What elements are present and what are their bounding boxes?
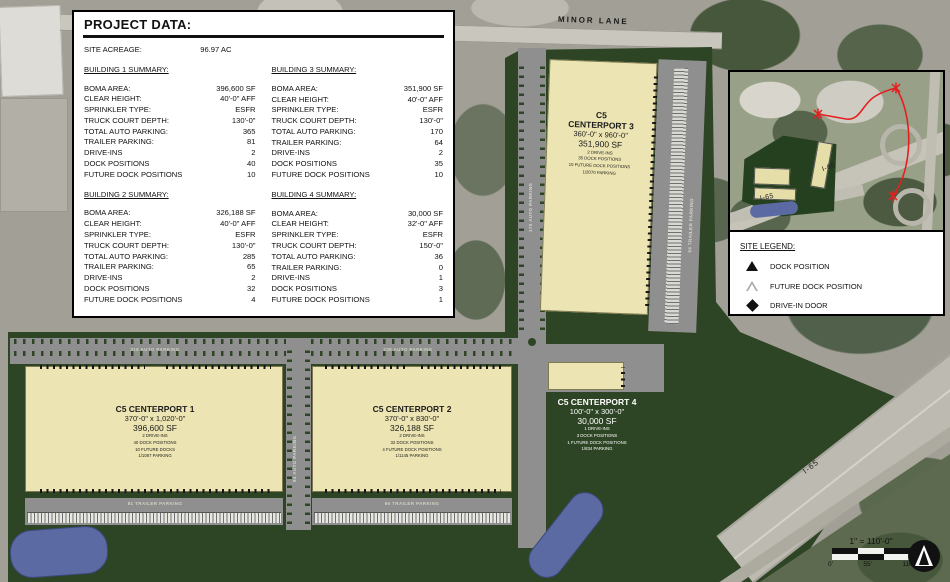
- building-4: [548, 362, 624, 390]
- scale-bar: 1" = 110'-0" 0' 55' 110': [832, 536, 916, 568]
- summary-row: CLEAR HEIGHT:40'-0" AFF: [84, 219, 256, 230]
- summary-row: BOMA AREA:326,188 SF: [84, 208, 256, 219]
- auto-parking-238-label: 238 AUTO PARKING: [348, 347, 468, 352]
- site-plan-canvas: MINOR LANE 64 TRAILER PARKI: [0, 0, 950, 582]
- building3-label: C5 CENTERPORT 3 360'-0" x 960'-0" 351,90…: [546, 108, 654, 178]
- legend-item: DRIVE-IN DOOR: [744, 301, 943, 310]
- summary-row: DRIVE-INS1: [272, 273, 444, 284]
- summary-row: DOCK POSITIONS32: [84, 284, 256, 295]
- trailer-stall-lines: [314, 512, 510, 523]
- project-data-title: PROJECT DATA:: [83, 16, 444, 38]
- summary-row: CLEAR HEIGHT:32'-0" AFF: [272, 219, 444, 230]
- dock-position-icon: [746, 261, 758, 271]
- summary-row: FUTURE DOCK POSITIONS10: [84, 170, 256, 181]
- summary-row: TOTAL AUTO PARKING:36: [272, 252, 444, 263]
- parking-stalls: [287, 344, 292, 524]
- summary-row: TRAILER PARKING:64: [272, 138, 444, 149]
- dock-positions: [325, 365, 405, 369]
- summary-row: FUTURE DOCK POSITIONS10: [272, 170, 444, 181]
- summary-row: TRUCK COURT DEPTH:130'-0": [272, 116, 444, 127]
- summary-row: DRIVE-INS2: [272, 148, 444, 159]
- summary-row: SPRINKLER TYPE:ESFR: [272, 230, 444, 241]
- summary-row: DOCK POSITIONS40: [84, 159, 256, 170]
- summary-row: SPRINKLER TYPE:ESFR: [84, 105, 256, 116]
- aerial-warehouse-roof-2: [0, 98, 68, 212]
- legend-item: FUTURE DOCK POSITION: [744, 281, 943, 291]
- building4-label: C5 CENTERPORT 4 100'-0" x 300'-0" 30,000…: [533, 397, 661, 453]
- dock-positions: [621, 367, 625, 387]
- auto-parking-94-label: 94 AUTO PARKING: [292, 436, 297, 482]
- dock-positions: [325, 489, 501, 493]
- future-dock-position-icon: [746, 281, 758, 291]
- trailer-stall-lines: [664, 68, 688, 324]
- summary-row: TRAILER PARKING:0: [272, 263, 444, 274]
- auto-parking-170-label: 170 AUTO PARKING: [528, 183, 533, 232]
- project-data-table: SITE ACREAGE: 96.97 AC BUILDING 1 SUMMAR…: [83, 42, 444, 306]
- summary-row: FUTURE DOCK POSITIONS4: [84, 295, 256, 306]
- summary-row: TOTAL AUTO PARKING:170: [272, 127, 444, 138]
- trailer-parking-64-label: 64 TRAILER PARKING: [687, 198, 694, 253]
- building-3: C5 CENTERPORT 3 360'-0" x 960'-0" 351,90…: [540, 59, 658, 315]
- building2-label: C5 CENTERPORT 2 370'-0" x 830'-0" 326,18…: [327, 404, 497, 460]
- auto-parking-318-label: 318 AUTO PARKING: [95, 347, 215, 352]
- table-column-left: SITE ACREAGE: 96.97 AC BUILDING 1 SUMMAR…: [84, 42, 256, 306]
- summary-row: TRAILER PARKING:65: [84, 262, 256, 273]
- dock-positions: [166, 365, 271, 369]
- parking-stalls: [305, 344, 310, 524]
- legend-item: DOCK POSITION: [744, 261, 943, 271]
- summary-row: BOMA AREA:30,000 SF: [272, 209, 444, 220]
- scale-bar-graphic: [832, 548, 910, 560]
- table-column-right: BUILDING 3 SUMMARY: BOMA AREA:351,900 SF…: [272, 42, 444, 306]
- site-legend: SITE LEGEND: DOCK POSITION FUTURE DOCK P…: [730, 232, 943, 310]
- summary-row: FUTURE DOCK POSITIONS1: [272, 295, 444, 306]
- site-acreage-row: SITE ACREAGE: 96.97 AC: [84, 45, 231, 56]
- dock-positions: [40, 489, 270, 493]
- summary-row: DRIVE-INS2: [84, 148, 256, 159]
- column-spacer: [272, 42, 444, 56]
- trailer-parking-81-label: 81 TRAILER PARKING: [100, 501, 210, 506]
- summary-row: TOTAL AUTO PARKING:365: [84, 127, 256, 138]
- detention-pond-west: [8, 525, 109, 580]
- route-line: [818, 88, 896, 119]
- location-inset-map: I-65 I-65: [730, 72, 943, 232]
- summary-row: DOCK POSITIONS3: [272, 284, 444, 295]
- inset-panel: I-65 I-65 SITE LEGEND: DOCK POSITION FUT…: [728, 70, 945, 316]
- trailer-parking-65-label: 65 TRAILER PARKING: [357, 501, 467, 506]
- site-legend-title: SITE LEGEND:: [740, 242, 943, 251]
- scale-bar-ticks: 0' 55' 110': [828, 561, 914, 568]
- legend-item-label: FUTURE DOCK POSITION: [770, 282, 862, 291]
- route-line: [893, 88, 909, 196]
- building3-heading: BUILDING 3 SUMMARY:: [272, 65, 444, 76]
- north-arrow-icon: [908, 540, 940, 572]
- summary-row: TRAILER PARKING:81: [84, 137, 256, 148]
- summary-row: DOCK POSITIONS35: [272, 159, 444, 170]
- summary-row: BOMA AREA:351,900 SF: [272, 84, 444, 95]
- parking-stalls: [14, 339, 516, 344]
- summary-row: TOTAL AUTO PARKING:285: [84, 252, 256, 263]
- trailer-stall-lines: [27, 512, 281, 523]
- scale-bar-title: 1" = 110'-0": [832, 536, 910, 546]
- route-marker-icon: [889, 191, 897, 202]
- route-overlay: [730, 72, 943, 230]
- center-drive: [286, 338, 311, 530]
- summary-row: TRUCK COURT DEPTH:130'-0": [84, 116, 256, 127]
- project-data-panel: PROJECT DATA: SITE ACREAGE: 96.97 AC BUI…: [72, 10, 455, 318]
- summary-row: CLEAR HEIGHT:40'-0" AFF: [84, 94, 256, 105]
- drive-in-door-icon: [746, 299, 759, 312]
- summary-row: SPRINKLER TYPE:ESFR: [84, 230, 256, 241]
- summary-row: TRUCK COURT DEPTH:130'-0": [84, 241, 256, 252]
- dock-positions: [40, 365, 145, 369]
- summary-row: TRUCK COURT DEPTH:150'-0": [272, 241, 444, 252]
- building4-heading: BUILDING 4 SUMMARY:: [272, 190, 444, 201]
- summary-row: SPRINKLER TYPE:ESFR: [272, 105, 444, 116]
- summary-row: CLEAR HEIGHT:40'-0" AFF: [272, 95, 444, 106]
- building1-heading: BUILDING 1 SUMMARY:: [84, 65, 256, 76]
- building-3-group: 64 TRAILER PARKING C5 CENTERPORT 3 360'-…: [511, 46, 712, 343]
- aerial-warehouse-roof: [0, 5, 64, 97]
- dock-positions: [421, 365, 501, 369]
- legend-item-label: DRIVE-IN DOOR: [770, 301, 828, 310]
- summary-row: DRIVE-INS2: [84, 273, 256, 284]
- legend-item-label: DOCK POSITION: [770, 262, 830, 271]
- summary-row: BOMA AREA:396,600 SF: [84, 84, 256, 95]
- building2-heading: BUILDING 2 SUMMARY:: [84, 190, 256, 201]
- minor-lane-label: MINOR LANE: [558, 15, 629, 26]
- building1-label: C5 CENTERPORT 1 370'-0" x 1,020'-0" 396,…: [60, 404, 250, 460]
